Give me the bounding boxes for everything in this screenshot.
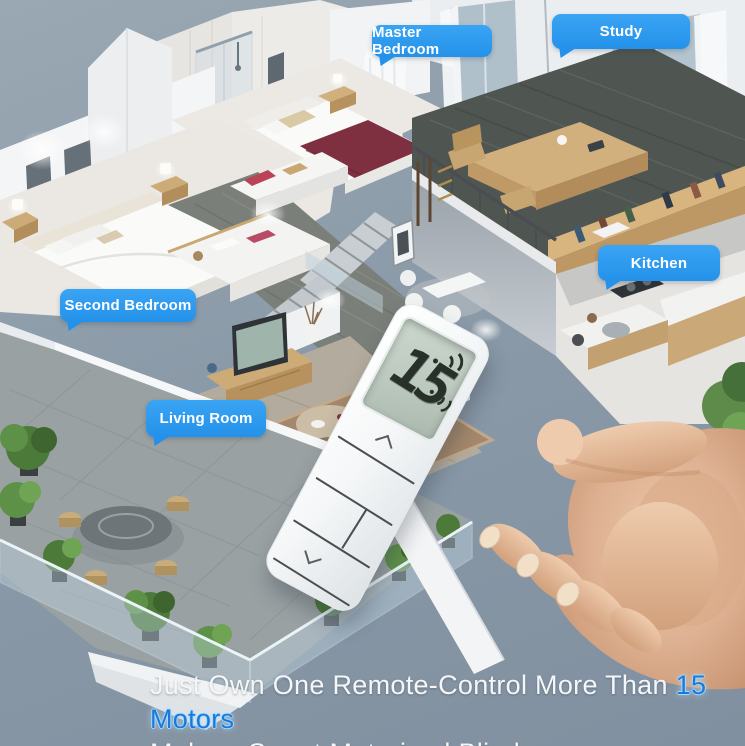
room-label-text: Living Room bbox=[159, 410, 252, 427]
caption-line1-text: Just Own One Remote-Control More Than bbox=[150, 670, 676, 700]
room-label-text: Master Bedroom bbox=[372, 24, 492, 58]
room-label-text: Kitchen bbox=[631, 255, 687, 272]
room-label-living-room: Living Room bbox=[146, 400, 266, 437]
caption-line2: Make a Smart Motorized Blinds bbox=[150, 736, 745, 746]
room-label-kitchen: Kitchen bbox=[598, 245, 720, 281]
marketing-caption: Just Own One Remote-Control More Than 15… bbox=[150, 668, 745, 746]
hand-fingers-and-thumb bbox=[0, 0, 745, 746]
room-label-text: Second Bedroom bbox=[65, 297, 192, 314]
room-label-text: Study bbox=[600, 23, 643, 40]
room-label-second-bedroom: Second Bedroom bbox=[60, 289, 196, 322]
caption-line1: Just Own One Remote-Control More Than 15… bbox=[150, 668, 745, 736]
thumb bbox=[537, 411, 712, 493]
product-marketing-image: 15 bbox=[0, 0, 745, 746]
room-label-study: Study bbox=[552, 14, 690, 49]
room-label-master-bedroom: Master Bedroom bbox=[372, 25, 492, 57]
